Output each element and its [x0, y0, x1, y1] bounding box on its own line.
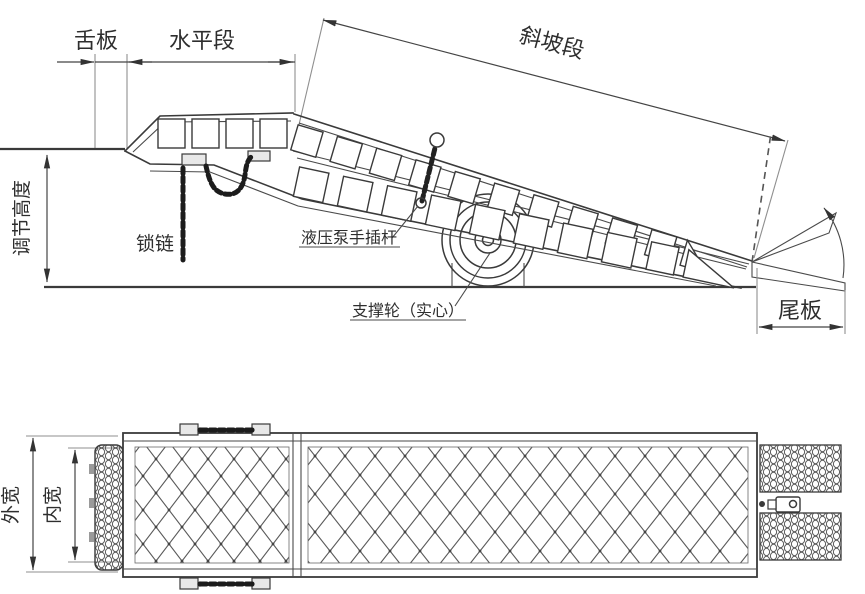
plan-view: 外宽 内宽: [0, 424, 841, 589]
side-view: 舌板 水平段 斜坡段 调节高度: [0, 18, 845, 334]
loop-chain: [206, 157, 251, 194]
slope-structure: [291, 114, 752, 290]
plan-tail-flaps: [759, 445, 841, 560]
tail-plate-assembly: 尾板: [752, 133, 845, 334]
inner-width-label: 内宽: [42, 486, 64, 524]
plan-mesh-slope-section: [308, 447, 748, 563]
adjustable-height-label: 调节高度: [11, 180, 33, 256]
plan-tongue-plate: [89, 445, 123, 570]
technical-drawing-page: 舌板 水平段 斜坡段 调节高度: [0, 0, 865, 594]
support-wheel-label: 支撑轮（实心）: [352, 301, 464, 320]
dimension-height: 调节高度: [11, 155, 47, 282]
plan-latch: [759, 497, 800, 512]
lock-chains: 锁链: [136, 151, 270, 260]
slope-section-label: 斜坡段: [517, 23, 587, 64]
pump-rod-label: 液压泵手插杆: [301, 228, 397, 247]
plan-deck: [123, 433, 757, 577]
horizontal-section-label: 水平段: [169, 29, 235, 54]
plan-chain-bottom: [180, 578, 270, 589]
outer-width-label: 外宽: [0, 486, 22, 524]
tongue-plate-label: 舌板: [74, 29, 118, 54]
tail-raised-dashed-line: [752, 133, 771, 262]
lock-chain-label: 锁链: [136, 233, 174, 255]
tail-plate-label: 尾板: [778, 299, 822, 324]
yard-ramp-drawing: 舌板 水平段 斜坡段 调节高度: [0, 0, 865, 594]
plan-mesh-horizontal-section: [135, 447, 289, 563]
